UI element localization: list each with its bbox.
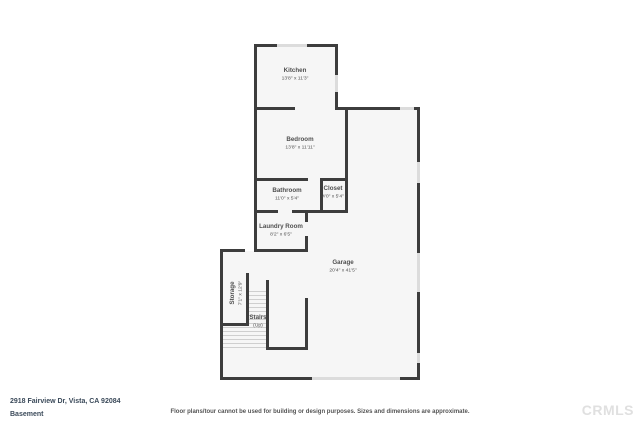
window-segment: [312, 377, 400, 380]
wall-segment: [266, 347, 308, 350]
wall-segment: [254, 249, 308, 252]
wall-segment: [254, 178, 308, 181]
room-dims: 8'2" x 6'5": [259, 231, 303, 237]
room-label-garage: Garage20'4" x 41'5": [329, 259, 356, 273]
room-label-stairs: Stairs(Up): [249, 314, 266, 328]
room-label-kitchen: Kitchen13'8" x 11'3": [282, 67, 309, 81]
room-label-closet: Closet4'0" x 5'4": [322, 185, 344, 199]
window-segment: [417, 353, 420, 363]
room-name: Bathroom: [272, 187, 301, 195]
wall-segment: [417, 292, 420, 353]
room-dims: 13'8" x 11'11": [285, 144, 314, 150]
stair-tread: [223, 339, 266, 340]
stair-tread: [249, 311, 266, 312]
stair-tread: [249, 299, 266, 300]
room-label-laundry-room: Laundry Room8'2" x 6'5": [259, 223, 303, 237]
stair-tread: [223, 343, 266, 344]
wall-segment: [335, 92, 338, 110]
window-segment: [417, 253, 420, 292]
wall-segment: [320, 178, 347, 181]
room-label-storage: Storage7'1" x 12'9": [229, 281, 243, 305]
room-dims: (Up): [249, 322, 266, 328]
wall-segment: [335, 44, 338, 75]
window-segment: [335, 75, 338, 92]
room-dims: 11'0" x 5'4": [272, 195, 301, 201]
wall-segment: [254, 44, 277, 47]
wall-segment: [305, 210, 308, 222]
stair-tread: [249, 295, 266, 296]
crmls-watermark: CRMLS: [582, 402, 634, 418]
wall-segment: [417, 363, 420, 380]
wall-segment: [254, 210, 278, 213]
stair-tread: [223, 347, 266, 348]
room-name: Closet: [322, 185, 344, 193]
room-name: Garage: [329, 259, 356, 267]
stair-tread: [249, 307, 266, 308]
wall-segment: [254, 107, 295, 110]
room-name: Stairs: [249, 314, 266, 322]
wall-segment: [345, 107, 348, 213]
wall-segment: [220, 377, 312, 380]
wall-segment: [307, 44, 338, 47]
floorplan: Kitchen13'8" x 11'3"Bedroom13'8" x 11'11…: [0, 0, 640, 426]
room-label-bedroom: Bedroom13'8" x 11'11": [285, 136, 314, 150]
wall-segment: [220, 249, 245, 252]
room-dims: 4'0" x 5'4": [322, 193, 344, 199]
room-floor: [305, 213, 418, 251]
room-name: Laundry Room: [259, 223, 303, 231]
room-dims: 20'4" x 41'5": [329, 267, 356, 273]
room-floor: [345, 109, 418, 213]
wall-segment: [305, 298, 308, 350]
wall-segment: [305, 236, 308, 252]
stair-tread: [223, 331, 266, 332]
disclaimer-text: Floor plans/tour cannot be used for buil…: [0, 409, 640, 415]
wall-segment: [254, 44, 257, 251]
room-name: Kitchen: [282, 67, 309, 75]
stair-tread: [249, 303, 266, 304]
wall-segment: [220, 249, 223, 380]
stair-tread: [249, 291, 266, 292]
room-label-bathroom: Bathroom11'0" x 5'4": [272, 187, 301, 201]
room-dims: 13'8" x 11'3": [282, 75, 309, 81]
window-segment: [400, 107, 414, 110]
room-name: Storage: [229, 281, 237, 305]
wall-segment: [220, 323, 249, 326]
room-name: Bedroom: [285, 136, 314, 144]
stair-tread: [223, 335, 266, 336]
wall-segment: [417, 107, 420, 162]
wall-segment: [417, 183, 420, 253]
window-segment: [417, 162, 420, 183]
room-dims: 7'1" x 12'9": [237, 281, 243, 305]
address-text: 2918 Fairview Dr, Vista, CA 92084: [10, 398, 121, 405]
window-segment: [277, 44, 307, 47]
